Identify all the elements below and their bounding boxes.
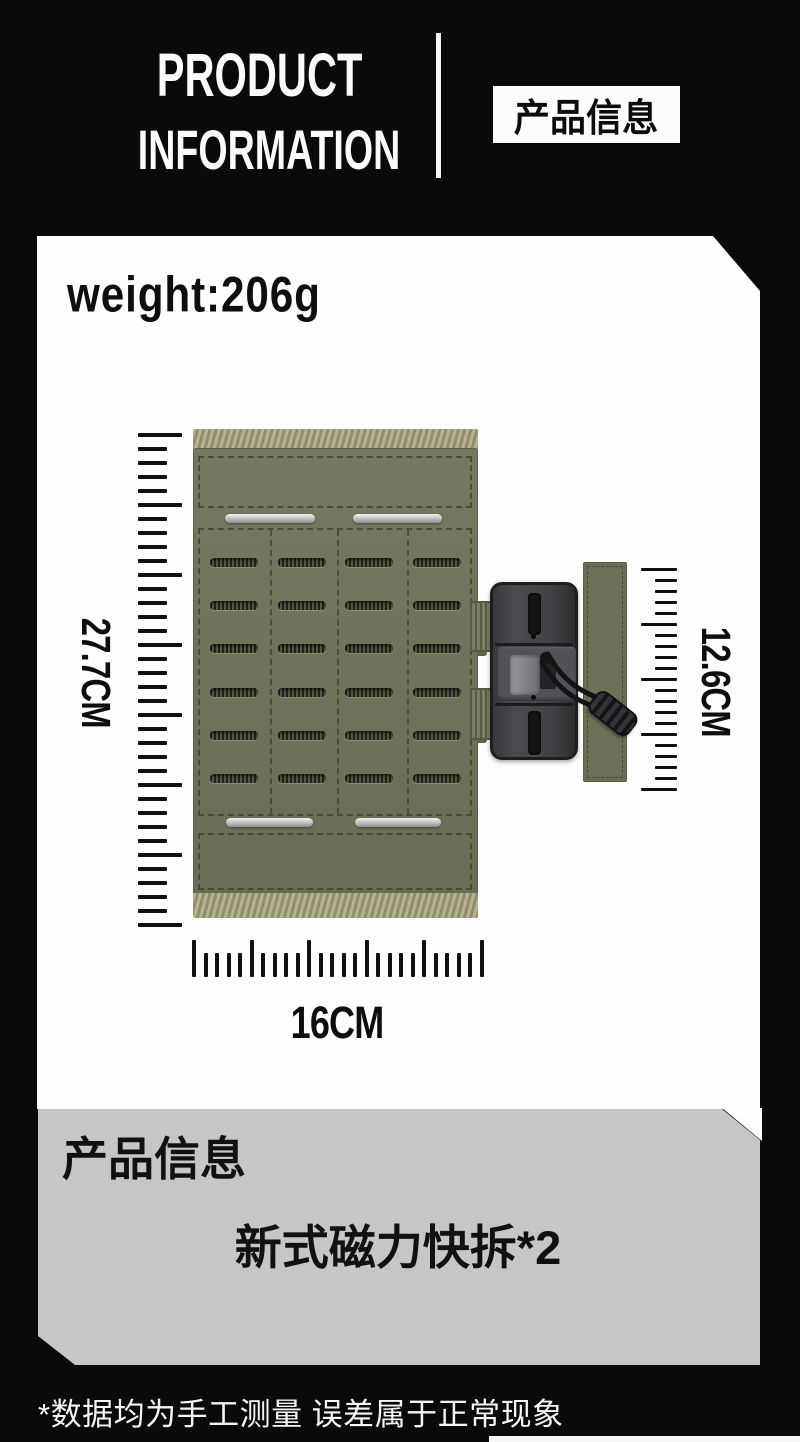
info-panel: 产品信息 新式磁力快拆*2 [38, 1109, 760, 1365]
ruler-tick [319, 953, 323, 977]
laser-cut-slot [278, 731, 326, 740]
ruler-tick [227, 953, 231, 977]
ruler-tick [192, 940, 196, 977]
laser-cut-slot [210, 731, 258, 740]
laser-cut-slot [345, 644, 393, 653]
ruler-tick [376, 953, 380, 977]
ruler-tick [138, 741, 167, 745]
ruler-tick [138, 433, 182, 437]
ruler-tick [655, 667, 677, 670]
spec-panel: weight:206g 27.7CM 12.6CM 16CM [37, 236, 760, 1109]
ruler-tick [655, 755, 677, 758]
ruler-tick [138, 461, 167, 465]
laser-cut-slot [345, 774, 393, 783]
ruler-tick [422, 940, 426, 977]
ruler-tick [655, 634, 677, 637]
buckle-height-measurement-label: 12.6CM [693, 597, 739, 767]
ruler-tick [434, 953, 438, 977]
title-line-1: PRODUCT [105, 46, 415, 106]
ruler-tick [457, 953, 461, 977]
ruler-tick [138, 573, 182, 577]
ruler-tick [138, 755, 167, 759]
laser-cut-slot [345, 601, 393, 610]
info-panel-heading: 产品信息 [62, 1123, 246, 1189]
ruler-tick [284, 953, 288, 977]
ruler-tick [655, 579, 677, 582]
ruler-tick [138, 545, 167, 549]
ruler-tick [388, 953, 392, 977]
laser-cut-slot [210, 601, 258, 610]
laser-cut-slot [210, 644, 258, 653]
ruler-tick [138, 629, 167, 633]
laser-cut-slot [413, 644, 461, 653]
ruler-tick [138, 587, 167, 591]
ruler-tick [641, 568, 677, 571]
ruler-tick [655, 711, 677, 714]
ruler-tick [138, 797, 167, 801]
ruler-tick [342, 953, 346, 977]
ruler-tick [250, 940, 254, 977]
laser-cut-slot [345, 731, 393, 740]
ruler-tick [261, 953, 265, 977]
ruler-tick [655, 601, 677, 604]
ruler-tick [655, 590, 677, 593]
top-stitch-box [198, 456, 472, 508]
ruler-tick [138, 657, 167, 661]
ruler-tick [273, 953, 277, 977]
ruler-tick [138, 489, 167, 493]
ruler-tick [138, 447, 167, 451]
ruler-tick [641, 678, 677, 681]
laser-cut-slot [345, 558, 393, 567]
ruler-tick [138, 643, 182, 647]
ruler-tick [138, 601, 167, 605]
bottom-stitch-box [198, 833, 472, 890]
ruler-tick [411, 953, 415, 977]
header-divider [436, 33, 441, 178]
laser-cut-slot [413, 688, 461, 697]
title-line-2: INFORMATION [105, 122, 415, 177]
buckle-slot-top [528, 593, 541, 635]
reflective-slot [355, 818, 441, 827]
ruler-tick [138, 909, 167, 913]
ruler-tick [655, 645, 677, 648]
ruler-tick [399, 953, 403, 977]
ruler-tick [138, 615, 167, 619]
ruler-tick [655, 656, 677, 659]
page-title: PRODUCT INFORMATION [105, 0, 415, 200]
ruler-tick [238, 953, 242, 977]
laser-cut-slot [210, 774, 258, 783]
ruler-tick [215, 953, 219, 977]
stitch-line [407, 530, 409, 814]
buckle-screw [531, 634, 536, 639]
width-measurement-label: 16CM [237, 998, 437, 1048]
top-webbing-strip [193, 429, 478, 450]
laser-cut-slot [278, 558, 326, 567]
ruler-tick [138, 853, 182, 857]
ruler-tick [307, 940, 311, 977]
ruler-tick [655, 700, 677, 703]
ruler-tick [138, 727, 167, 731]
reflective-slot [225, 514, 315, 523]
laser-cut-slot [413, 731, 461, 740]
height-measurement-label: 27.7CM [73, 588, 119, 758]
ruler-tick [655, 689, 677, 692]
ruler-tick [296, 953, 300, 977]
ruler-tick [353, 953, 357, 977]
ruler-tick [655, 766, 677, 769]
footnote: *数据均为手工测量 误差属于正常现象 [38, 1389, 564, 1434]
laser-cut-slot [345, 688, 393, 697]
ruler-tick [138, 713, 182, 717]
ruler-tick [641, 623, 677, 626]
laser-cut-grid [198, 528, 472, 816]
reflective-slot [353, 514, 442, 523]
ruler-tick [365, 940, 369, 977]
reflective-slot [226, 818, 313, 827]
ruler-tick [655, 777, 677, 780]
page-background: PRODUCT INFORMATION 产品信息 weight:206g 27.… [0, 0, 800, 1442]
ruler-tick [138, 895, 167, 899]
ruler-tick [655, 722, 677, 725]
ruler-tick [138, 881, 167, 885]
ruler-tick [138, 811, 167, 815]
ruler-tick [138, 699, 167, 703]
stitch-line [270, 530, 272, 814]
ruler-tick [138, 503, 182, 507]
ruler-tick [445, 953, 449, 977]
ruler-tick [138, 839, 167, 843]
laser-cut-slot [278, 601, 326, 610]
ruler-tick [138, 475, 167, 479]
ruler-tick [138, 671, 167, 675]
bottom-webbing-strip [193, 893, 478, 918]
stitch-line [337, 530, 339, 814]
laser-cut-slot [413, 558, 461, 567]
header-badge: 产品信息 [493, 86, 680, 143]
ruler-tick [138, 517, 167, 521]
weight-label: weight:206g [67, 268, 355, 323]
laser-cut-slot [278, 688, 326, 697]
laser-cut-slot [210, 688, 258, 697]
ruler-tick [138, 867, 167, 871]
ruler-tick [138, 825, 167, 829]
laser-cut-slot [413, 601, 461, 610]
ruler-tick [138, 531, 167, 535]
ruler-tick [641, 733, 677, 736]
ruler-tick [138, 559, 167, 563]
laser-cut-slot [210, 558, 258, 567]
info-panel-description: 新式磁力快拆*2 [58, 1209, 738, 1278]
ruler-tick [641, 788, 677, 791]
ruler-tick [138, 783, 182, 787]
laser-cut-slot [278, 774, 326, 783]
ruler-tick [138, 769, 167, 773]
ruler-tick [330, 953, 334, 977]
ruler-tick [480, 940, 484, 977]
header-badge-label: 产品信息 [514, 87, 658, 142]
laser-cut-slot [413, 774, 461, 783]
ruler-tick [138, 685, 167, 689]
ruler-tick [138, 923, 182, 927]
ruler-tick [204, 953, 208, 977]
laser-cut-slot [278, 644, 326, 653]
next-section-edge [489, 1436, 800, 1442]
product-image-molle-panel [193, 429, 478, 918]
ruler-tick [655, 744, 677, 747]
ruler-tick [655, 612, 677, 615]
ruler-tick [468, 953, 472, 977]
